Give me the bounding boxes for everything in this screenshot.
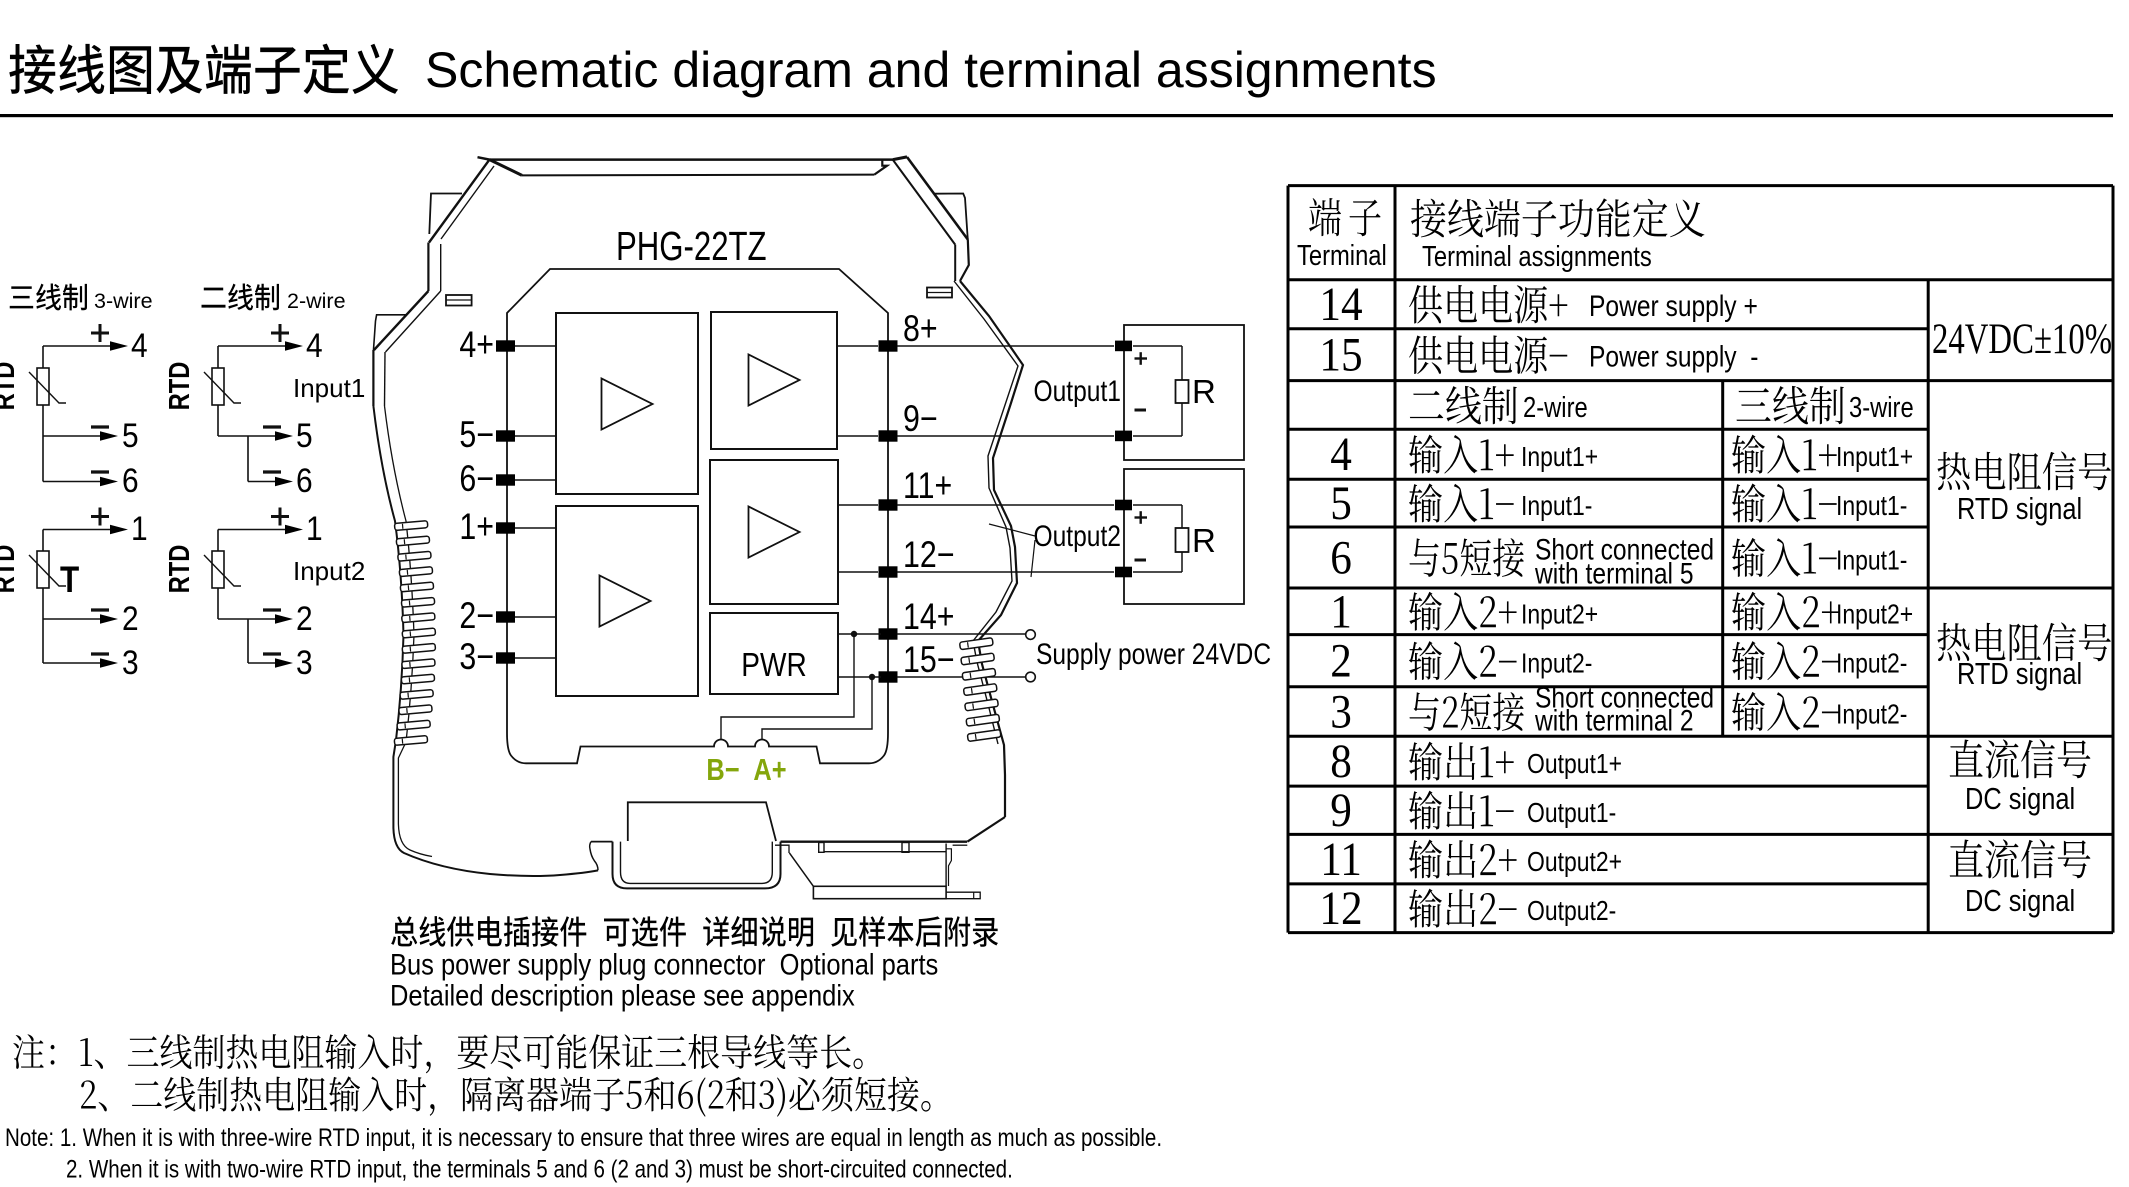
svg-text:2−: 2−	[459, 595, 494, 637]
svg-text:9: 9	[1330, 783, 1352, 837]
svg-text:3: 3	[1330, 684, 1352, 738]
svg-text:1: 1	[1330, 584, 1352, 638]
svg-text:Supply power 24VDC: Supply power 24VDC	[1036, 637, 1271, 671]
svg-text:RTD: RTD	[163, 545, 196, 594]
svg-text:1: 1	[306, 509, 323, 547]
svg-text:9−: 9−	[903, 398, 938, 440]
svg-text:4: 4	[131, 326, 148, 364]
svg-text:Input1+: Input1+	[1521, 442, 1598, 473]
svg-text:Power supply -: Power supply -	[1589, 339, 1758, 373]
svg-text:Input1: Input1	[293, 373, 365, 403]
svg-text:R: R	[1192, 522, 1216, 559]
svg-text:4: 4	[306, 326, 323, 364]
svg-text:T: T	[60, 560, 79, 601]
svg-text:11: 11	[1320, 832, 1362, 886]
svg-text:6: 6	[296, 461, 313, 499]
svg-text:Input2+: Input2+	[1521, 599, 1598, 630]
svg-text:6: 6	[122, 461, 139, 499]
svg-text:RTD signal: RTD signal	[1957, 657, 2082, 692]
svg-text:Input2-: Input2-	[1521, 649, 1592, 680]
svg-text:3−: 3−	[459, 636, 494, 678]
svg-text:5−: 5−	[459, 414, 494, 456]
svg-text:RTD: RTD	[0, 545, 21, 594]
svg-text:14: 14	[1319, 277, 1362, 331]
svg-text:1: 1	[131, 509, 148, 547]
svg-text:Bus power supply plug connecto: Bus power supply plug connector Optional…	[390, 948, 938, 981]
svg-text:Input1+: Input1+	[1836, 442, 1913, 473]
svg-text:3: 3	[296, 643, 313, 681]
svg-text:DC signal: DC signal	[1965, 884, 2075, 919]
svg-text:12−: 12−	[903, 534, 954, 576]
svg-text:Output1+: Output1+	[1527, 749, 1622, 780]
svg-text:RTD: RTD	[163, 362, 196, 411]
svg-text:6: 6	[1330, 530, 1352, 584]
svg-text:6−: 6−	[459, 458, 494, 500]
svg-text:5: 5	[122, 416, 139, 454]
svg-text:RTD: RTD	[0, 362, 21, 411]
svg-text:Output2-: Output2-	[1527, 896, 1616, 927]
svg-text:RTD signal: RTD signal	[1957, 492, 2082, 527]
svg-text:Input2-: Input2-	[1836, 649, 1907, 680]
svg-text:8+: 8+	[903, 308, 938, 350]
svg-text:24VDC±10%: 24VDC±10%	[1932, 316, 2112, 363]
svg-text:2. When it is with two-wire RT: 2. When it is with two-wire RTD input, t…	[66, 1155, 1013, 1183]
svg-text:with terminal 2: with terminal 2	[1534, 703, 1693, 737]
svg-text:Input1-: Input1-	[1836, 545, 1907, 576]
svg-text:2: 2	[296, 599, 313, 637]
svg-text:Output2: Output2	[1033, 519, 1121, 553]
svg-text:Detailed description please se: Detailed description please see appendix	[390, 979, 855, 1012]
svg-text:Output1: Output1	[1033, 374, 1121, 408]
svg-text:5: 5	[296, 416, 313, 454]
svg-text:Input2: Input2	[293, 556, 365, 586]
svg-text:PWR: PWR	[741, 647, 806, 684]
svg-text:PHG-22TZ: PHG-22TZ	[616, 223, 767, 269]
svg-text:15: 15	[1319, 328, 1362, 382]
svg-text:2-wire: 2-wire	[1523, 391, 1588, 424]
svg-text:2-wire: 2-wire	[287, 289, 346, 313]
svg-text:2: 2	[122, 599, 139, 637]
svg-text:12: 12	[1319, 881, 1362, 935]
svg-text:15−: 15−	[903, 639, 954, 681]
svg-text:Input2+: Input2+	[1836, 599, 1913, 630]
svg-text:8: 8	[1330, 734, 1352, 788]
svg-text:Power supply +: Power supply +	[1589, 289, 1758, 323]
svg-text:Output2+: Output2+	[1527, 847, 1622, 878]
svg-text:11+: 11+	[903, 465, 952, 507]
svg-text:Terminal assignments: Terminal assignments	[1422, 240, 1652, 273]
svg-text:Input1-: Input1-	[1836, 491, 1907, 522]
svg-text:Note: 1. When it is with three: Note: 1. When it is with three-wire RTD …	[5, 1123, 1162, 1151]
svg-text:3-wire: 3-wire	[94, 289, 153, 313]
svg-text:A+: A+	[753, 753, 786, 788]
svg-text:Terminal: Terminal	[1297, 239, 1387, 272]
svg-text:R: R	[1192, 373, 1216, 410]
svg-text:with terminal 5: with terminal 5	[1534, 556, 1693, 590]
svg-text:1+: 1+	[459, 506, 494, 548]
svg-text:Output1-: Output1-	[1527, 798, 1616, 829]
svg-text:4+: 4+	[459, 324, 494, 366]
svg-text:DC signal: DC signal	[1965, 782, 2075, 817]
svg-text:14+: 14+	[903, 596, 954, 638]
svg-text:Input2-: Input2-	[1836, 699, 1907, 730]
svg-text:Schematic diagram and terminal: Schematic diagram and terminal assignmen…	[425, 42, 1437, 98]
svg-text:3-wire: 3-wire	[1849, 391, 1914, 424]
svg-text:5: 5	[1330, 476, 1352, 530]
svg-text:B−: B−	[706, 753, 739, 788]
svg-text:3: 3	[122, 643, 139, 681]
svg-text:Input1-: Input1-	[1521, 491, 1592, 522]
svg-text:2: 2	[1330, 634, 1352, 688]
svg-text:4: 4	[1330, 427, 1352, 481]
